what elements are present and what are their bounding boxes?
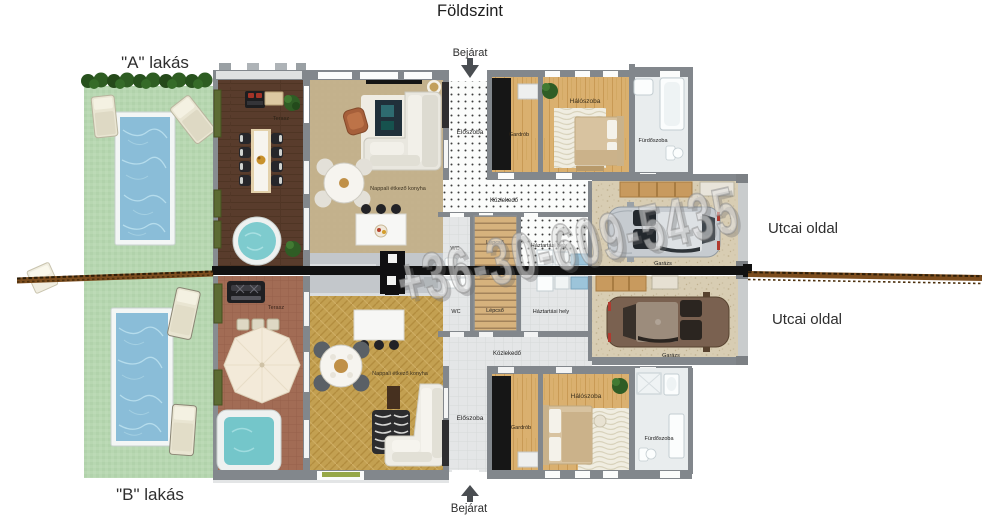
svg-text:Hálószoba: Hálószoba [571,393,602,400]
svg-text:Előszoba: Előszoba [457,129,484,136]
svg-text:Bejárat: Bejárat [453,47,488,59]
svg-text:Terasz: Terasz [268,305,284,311]
svg-text:Garázs: Garázs [662,353,680,359]
svg-text:Gardrób: Gardrób [511,425,531,431]
svg-text:Előszoba: Előszoba [457,415,484,422]
svg-text:"A" lakás: "A" lakás [121,53,189,72]
svg-text:Fürdőszoba: Fürdőszoba [638,138,668,144]
svg-text:Utcai oldal: Utcai oldal [772,311,842,328]
svg-text:Utcai oldal: Utcai oldal [768,220,838,237]
svg-text:Közlekedő: Közlekedő [493,351,522,357]
svg-text:Bejárat: Bejárat [451,503,488,515]
svg-text:Lépcső: Lépcső [486,308,504,314]
svg-text:Nappali étkező konyha: Nappali étkező konyha [372,371,429,377]
svg-text:Terasz: Terasz [273,116,289,122]
svg-text:Közlekedő: Közlekedő [490,198,519,204]
svg-text:Fürdőszoba: Fürdőszoba [644,436,674,442]
svg-text:Földszint: Földszint [437,2,503,20]
svg-text:Hálószoba: Hálószoba [570,98,601,105]
svg-text:Gardrób: Gardrób [509,132,529,138]
svg-text:Háztartási hely: Háztartási hely [533,309,570,315]
svg-text:Nappali étkező konyha: Nappali étkező konyha [370,186,427,192]
svg-text:"B" lakás: "B" lakás [116,485,184,504]
